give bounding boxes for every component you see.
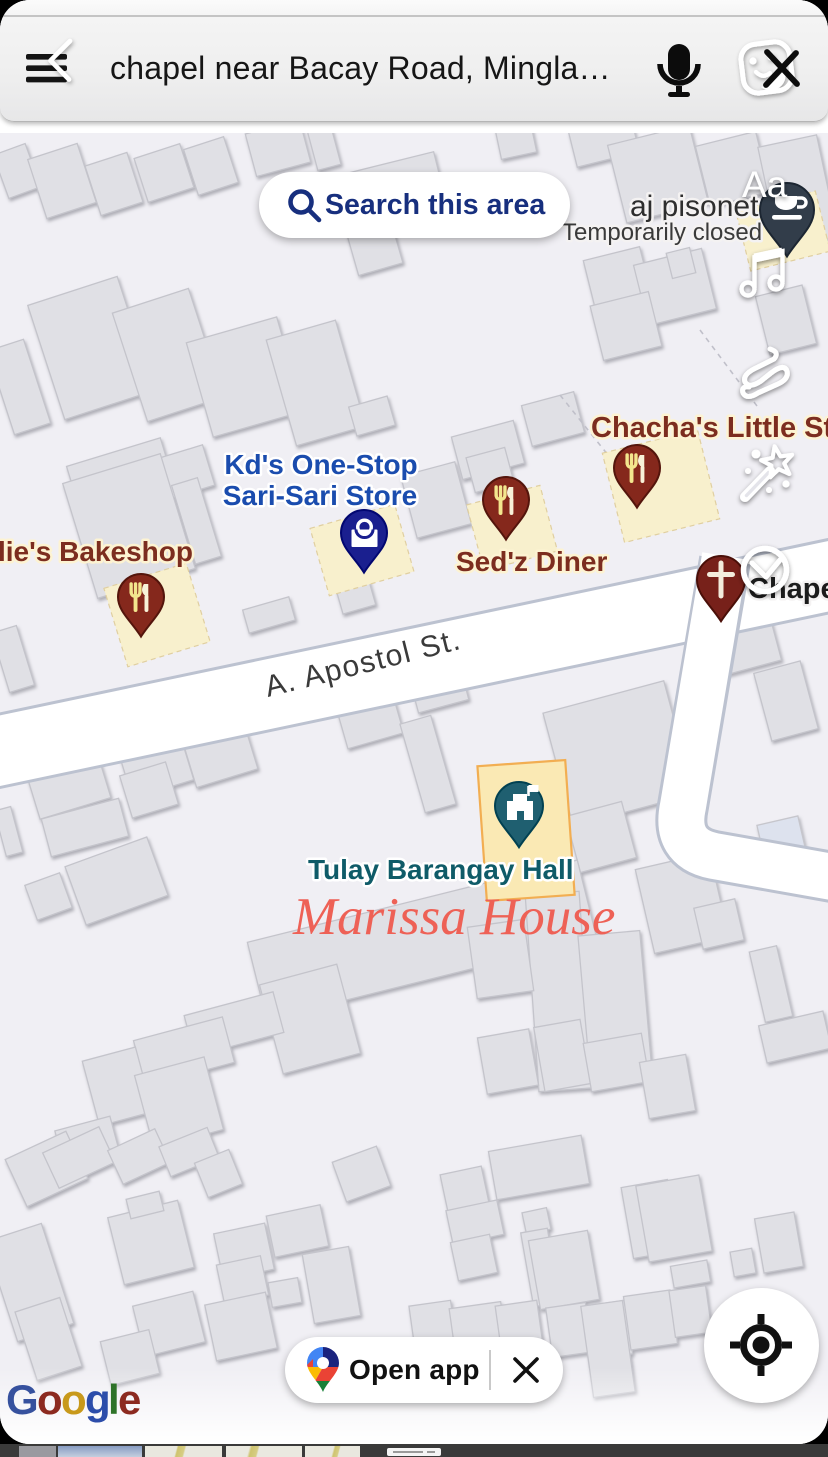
- svg-text:Sari-Sari Store: Sari-Sari Store: [223, 480, 418, 511]
- svg-text:G: G: [6, 1378, 37, 1423]
- svg-text:Sed'z Diner: Sed'z Diner: [456, 546, 607, 577]
- svg-text:o: o: [37, 1378, 62, 1423]
- svg-text:Temporarily closed: Temporarily closed: [562, 219, 762, 246]
- svg-text:l: l: [108, 1378, 118, 1423]
- svg-text:Kd's One-Stop: Kd's One-Stop: [224, 449, 417, 480]
- svg-text:o: o: [61, 1378, 86, 1423]
- svg-text:g: g: [85, 1378, 109, 1423]
- svg-text:Chacha's Little Sto: Chacha's Little Sto: [591, 412, 828, 444]
- svg-text:lie's Bakeshop: lie's Bakeshop: [0, 536, 193, 567]
- svg-text:Aa: Aa: [742, 164, 788, 205]
- svg-text:Marissa House: Marissa House: [292, 888, 615, 946]
- svg-text:e: e: [118, 1378, 140, 1423]
- svg-text:Tulay Barangay Hall: Tulay Barangay Hall: [308, 854, 574, 885]
